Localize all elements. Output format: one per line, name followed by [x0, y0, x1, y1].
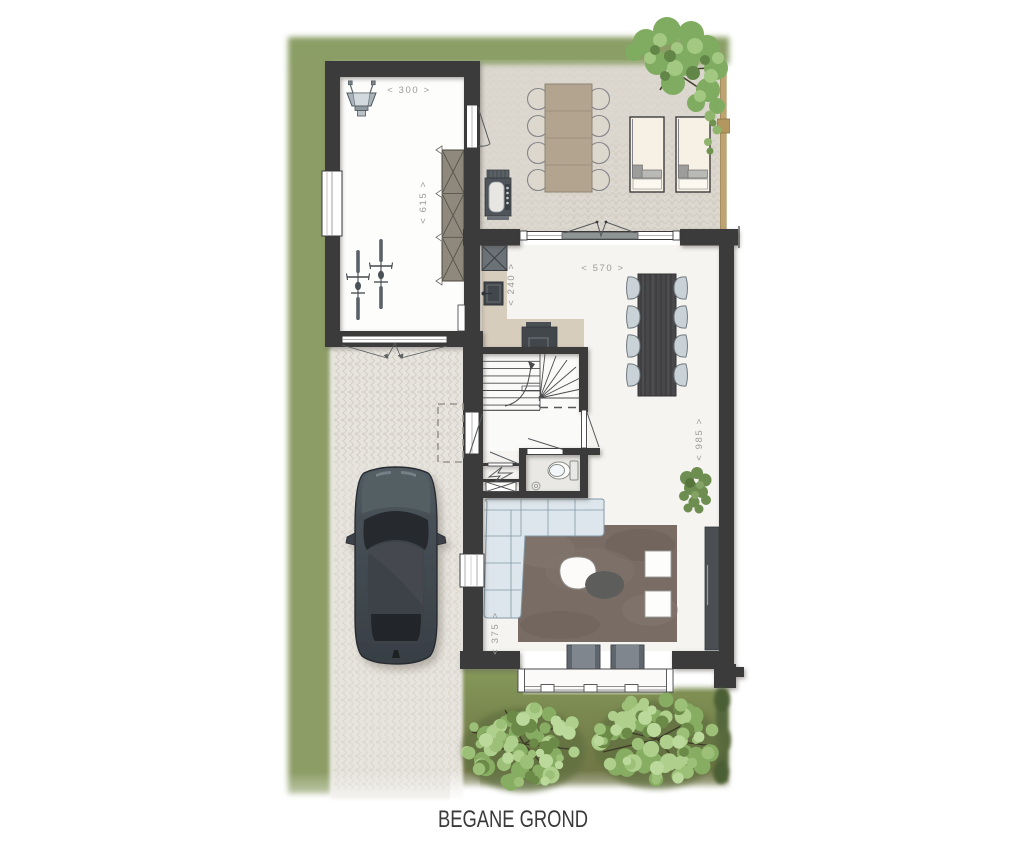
svg-text:< 375 >: < 375 >: [490, 611, 501, 654]
svg-text:< 615 >: < 615 >: [418, 180, 429, 223]
svg-text:BEGANE GROND: BEGANE GROND: [438, 806, 588, 833]
svg-text:< 300 >: < 300 >: [387, 85, 430, 96]
svg-text:< 985 >: < 985 >: [694, 417, 705, 460]
svg-text:< 570 >: < 570 >: [581, 263, 624, 274]
svg-text:< 240 >: < 240 >: [506, 262, 517, 305]
